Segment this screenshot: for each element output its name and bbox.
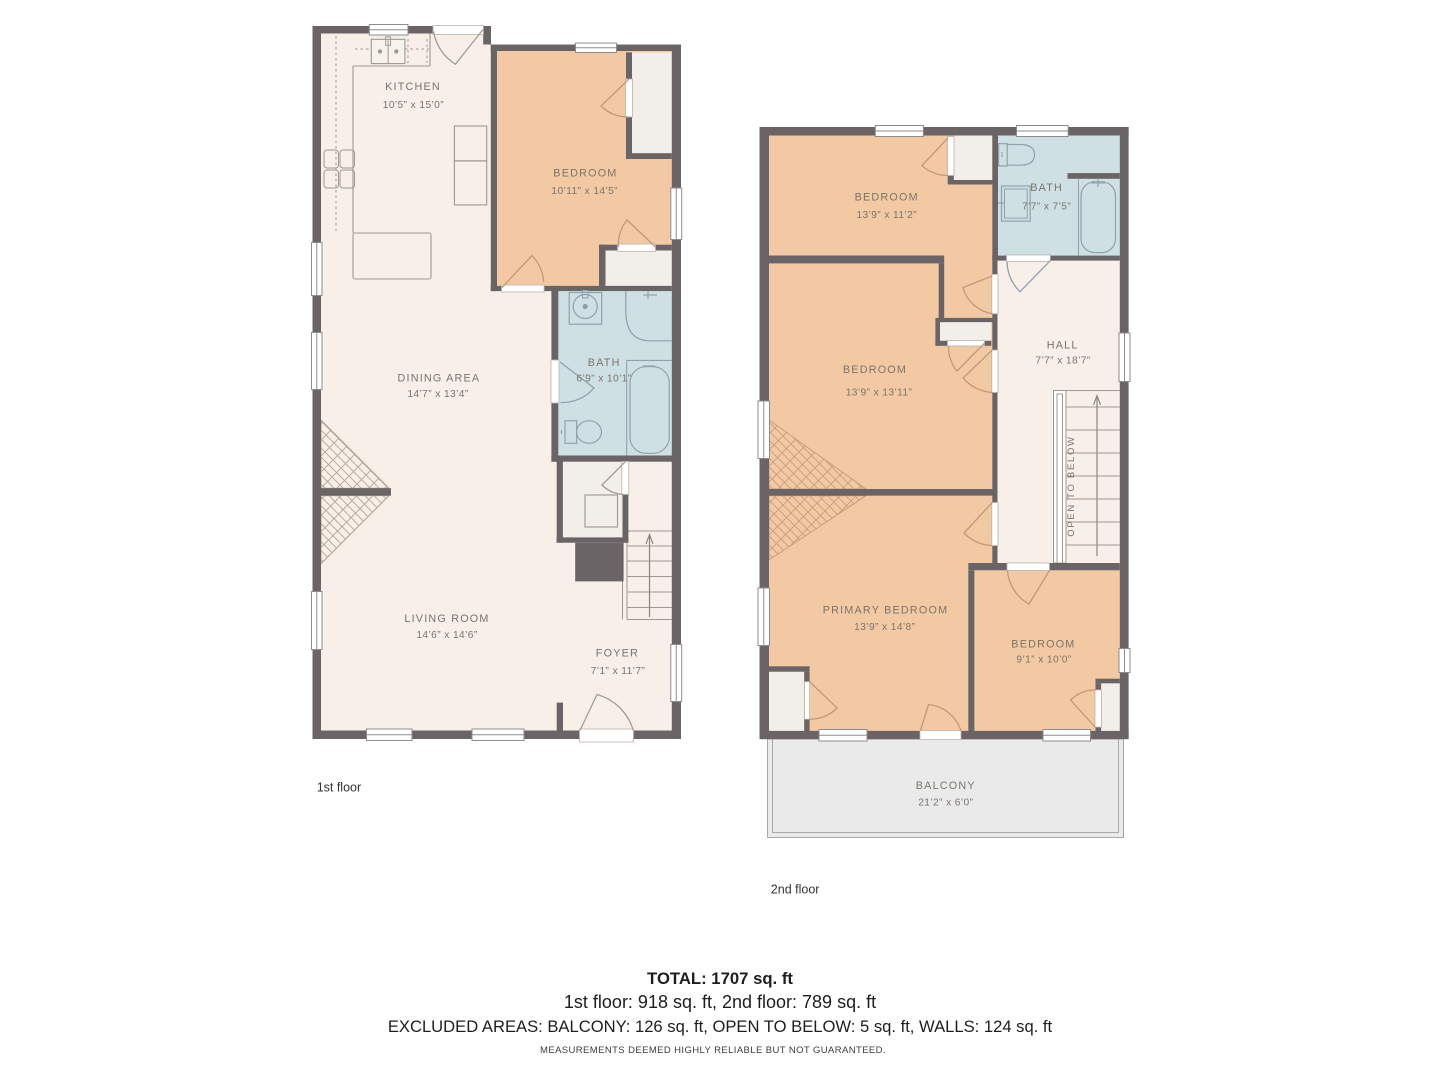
- svg-text:BATH: BATH: [588, 357, 621, 369]
- svg-text:14’6” x 14’6”: 14’6” x 14’6”: [416, 630, 477, 641]
- svg-text:13’9” x 13’11”: 13’9” x 13’11”: [846, 387, 913, 398]
- svg-text:BEDROOM: BEDROOM: [553, 168, 617, 180]
- svg-text:EXCLUDED AREAS: BALCONY: 126 s: EXCLUDED AREAS: BALCONY: 126 sq. ft, OPE…: [388, 1017, 1053, 1036]
- svg-text:TOTAL: 1707 sq. ft: TOTAL: 1707 sq. ft: [647, 969, 793, 988]
- svg-text:FOYER: FOYER: [596, 648, 639, 660]
- svg-text:7’1” x 11’7”: 7’1” x 11’7”: [591, 666, 646, 677]
- svg-text:BEDROOM: BEDROOM: [843, 364, 907, 376]
- svg-text:1st floor: 1st floor: [317, 780, 361, 794]
- svg-text:6’9” x 10’1”: 6’9” x 10’1”: [576, 374, 631, 385]
- svg-text:9’1” x 10’0”: 9’1” x 10’0”: [1016, 655, 1071, 666]
- svg-text:10’11” x 14’5”: 10’11” x 14’5”: [551, 186, 618, 197]
- svg-text:1st floor: 918 sq. ft, 2nd flo: 1st floor: 918 sq. ft, 2nd floor: 789 sq…: [564, 992, 876, 1012]
- svg-text:BEDROOM: BEDROOM: [1011, 639, 1075, 651]
- svg-text:BEDROOM: BEDROOM: [855, 192, 919, 204]
- svg-text:BATH: BATH: [1030, 182, 1063, 194]
- svg-text:7’7” x 7’5”: 7’7” x 7’5”: [1022, 202, 1071, 213]
- svg-text:DINING AREA: DINING AREA: [398, 372, 481, 384]
- svg-text:BALCONY: BALCONY: [916, 780, 976, 792]
- svg-text:PRIMARY BEDROOM: PRIMARY BEDROOM: [823, 605, 949, 617]
- svg-text:10’5” x 15’0”: 10’5” x 15’0”: [383, 100, 444, 111]
- svg-text:13’9” x 11’2”: 13’9” x 11’2”: [856, 210, 917, 221]
- svg-text:14’7” x 13’4”: 14’7” x 13’4”: [407, 389, 468, 400]
- svg-text:LIVING ROOM: LIVING ROOM: [404, 613, 489, 625]
- svg-text:13’9” x 14’8”: 13’9” x 14’8”: [854, 622, 915, 633]
- svg-text:KITCHEN: KITCHEN: [385, 81, 441, 93]
- svg-text:OPEN TO BELOW: OPEN TO BELOW: [1066, 435, 1077, 536]
- svg-text:7’7” x 18’7”: 7’7” x 18’7”: [1035, 356, 1090, 367]
- svg-text:HALL: HALL: [1047, 340, 1079, 352]
- svg-text:MEASUREMENTS DEEMED HIGHLY REL: MEASUREMENTS DEEMED HIGHLY RELIABLE BUT …: [540, 1045, 886, 1056]
- svg-text:21’2” x 6’0”: 21’2” x 6’0”: [918, 798, 973, 809]
- svg-text:2nd floor: 2nd floor: [771, 883, 820, 897]
